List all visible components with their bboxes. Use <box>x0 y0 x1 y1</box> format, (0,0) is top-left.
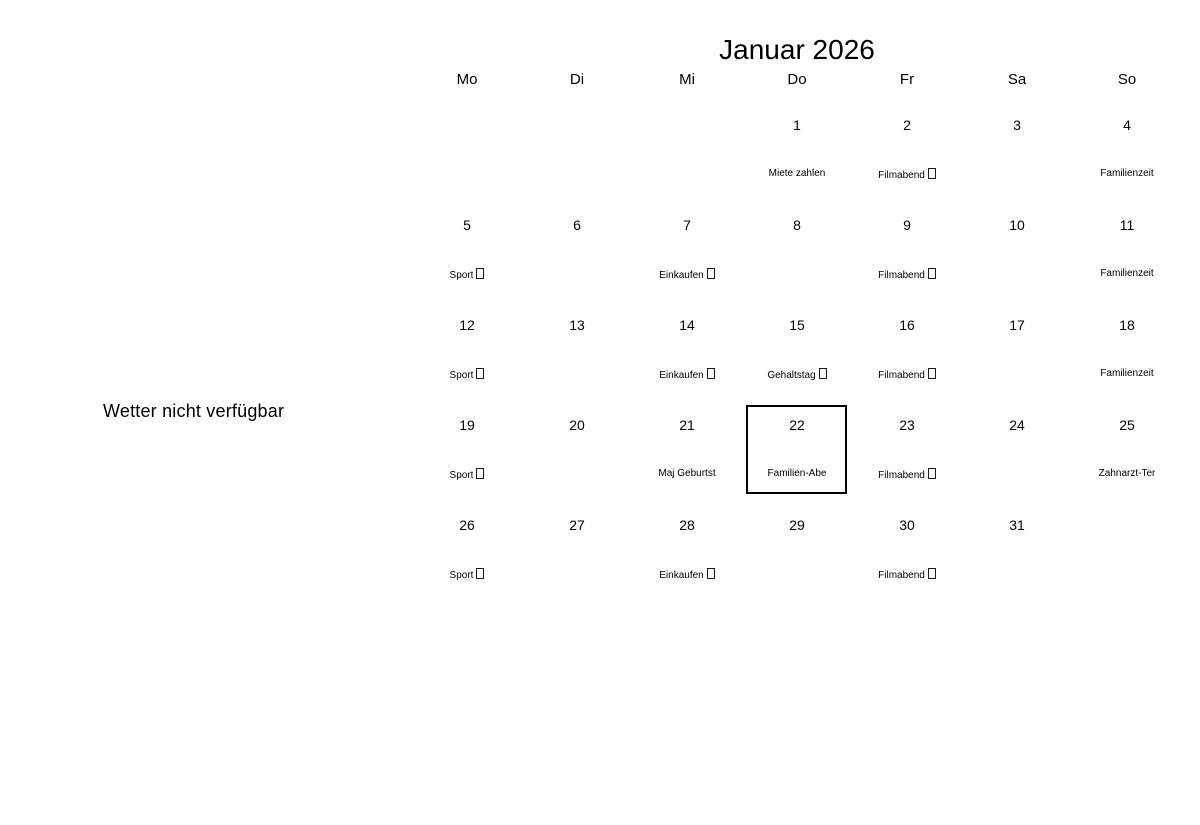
event-label: Familienzeit <box>1072 368 1182 379</box>
missing-glyph-icon <box>476 568 484 579</box>
day-number: 18 <box>1072 317 1182 333</box>
event-text: Familienzeit <box>1100 268 1153 279</box>
calendar-empty-cell <box>1072 505 1182 605</box>
calendar-grid: 1Miete zahlen2Filmabend34Familienzeit5Sp… <box>412 105 1182 605</box>
missing-glyph-icon <box>476 468 484 479</box>
event-label: Filmabend <box>852 168 962 181</box>
calendar-empty-cell <box>632 105 742 205</box>
day-number: 26 <box>412 517 522 533</box>
event-label: Filmabend <box>852 368 962 381</box>
event-text: Sport <box>450 270 474 281</box>
day-number: 2 <box>852 117 962 133</box>
weekday-label-fr: Fr <box>852 71 962 88</box>
event-label: Miete zahlen <box>742 168 852 179</box>
missing-glyph-icon <box>707 568 715 579</box>
event-label: Filmabend <box>852 568 962 581</box>
day-number: 17 <box>962 317 1072 333</box>
calendar-day-cell-6: 6 <box>522 205 632 305</box>
event-label: Filmabend <box>852 468 962 481</box>
missing-glyph-icon <box>707 268 715 279</box>
day-number: 29 <box>742 517 852 533</box>
calendar-day-cell-13: 13 <box>522 305 632 405</box>
day-number: 23 <box>852 417 962 433</box>
missing-glyph-icon <box>928 468 936 479</box>
calendar-day-cell-14: 14Einkaufen <box>632 305 742 405</box>
calendar-day-cell-8: 8 <box>742 205 852 305</box>
calendar-day-cell-18: 18Familienzeit <box>1072 305 1182 405</box>
calendar-day-cell-9: 9Filmabend <box>852 205 962 305</box>
day-number: 28 <box>632 517 742 533</box>
weekday-label-sa: Sa <box>962 71 1072 88</box>
day-number: 25 <box>1072 417 1182 433</box>
weekday-label-di: Di <box>522 71 632 88</box>
event-label: Sport <box>412 568 522 581</box>
event-text: Filmabend <box>878 470 925 481</box>
day-number: 8 <box>742 217 852 233</box>
calendar-empty-cell <box>412 105 522 205</box>
calendar-day-cell-17: 17 <box>962 305 1072 405</box>
day-number: 10 <box>962 217 1072 233</box>
event-text: Familien-Abe <box>768 468 827 479</box>
day-number: 9 <box>852 217 962 233</box>
event-text: Familienzeit <box>1100 168 1153 179</box>
calendar-day-cell-22: 22Familien-Abe <box>742 405 852 505</box>
weekday-label-mo: Mo <box>412 71 522 88</box>
calendar-day-cell-31: 31 <box>962 505 1072 605</box>
event-label: Filmabend <box>852 268 962 281</box>
weather-unavailable-text: Wetter nicht verfügbar <box>103 401 284 422</box>
calendar-day-cell-20: 20 <box>522 405 632 505</box>
missing-glyph-icon <box>476 368 484 379</box>
event-label: Sport <box>412 468 522 481</box>
event-text: Sport <box>450 370 474 381</box>
event-text: Einkaufen <box>659 570 703 581</box>
event-label: Sport <box>412 368 522 381</box>
missing-glyph-icon <box>476 268 484 279</box>
calendar-day-cell-30: 30Filmabend <box>852 505 962 605</box>
event-label: Sport <box>412 268 522 281</box>
event-text: Filmabend <box>878 170 925 181</box>
event-text: Familienzeit <box>1100 368 1153 379</box>
calendar-day-cell-23: 23Filmabend <box>852 405 962 505</box>
day-number: 27 <box>522 517 632 533</box>
event-text: Gehaltstag <box>767 370 815 381</box>
day-number: 12 <box>412 317 522 333</box>
day-number: 31 <box>962 517 1072 533</box>
day-number: 16 <box>852 317 962 333</box>
day-number: 30 <box>852 517 962 533</box>
event-label: Maj Geburtst <box>632 468 742 479</box>
calendar-day-cell-1: 1Miete zahlen <box>742 105 852 205</box>
weekday-label-mi: Mi <box>632 71 742 88</box>
calendar-day-cell-26: 26Sport <box>412 505 522 605</box>
calendar-day-cell-3: 3 <box>962 105 1072 205</box>
event-label: Familien-Abe <box>742 468 852 479</box>
event-text: Filmabend <box>878 570 925 581</box>
calendar-day-cell-4: 4Familienzeit <box>1072 105 1182 205</box>
day-number: 6 <box>522 217 632 233</box>
day-number: 1 <box>742 117 852 133</box>
missing-glyph-icon <box>928 168 936 179</box>
event-text: Sport <box>450 470 474 481</box>
day-number: 13 <box>522 317 632 333</box>
day-number: 19 <box>412 417 522 433</box>
event-text: Einkaufen <box>659 270 703 281</box>
weekday-label-do: Do <box>742 71 852 88</box>
calendar-day-cell-12: 12Sport <box>412 305 522 405</box>
calendar-day-cell-5: 5Sport <box>412 205 522 305</box>
day-number: 20 <box>522 417 632 433</box>
missing-glyph-icon <box>928 368 936 379</box>
event-text: Maj Geburtst <box>658 468 715 479</box>
day-number: 15 <box>742 317 852 333</box>
missing-glyph-icon <box>707 368 715 379</box>
missing-glyph-icon <box>928 568 936 579</box>
calendar-day-cell-19: 19Sport <box>412 405 522 505</box>
event-text: Zahnarzt-Ter <box>1099 468 1156 479</box>
calendar-day-cell-11: 11Familienzeit <box>1072 205 1182 305</box>
calendar-empty-cell <box>522 105 632 205</box>
day-number: 3 <box>962 117 1072 133</box>
missing-glyph-icon <box>928 268 936 279</box>
calendar-day-cell-29: 29 <box>742 505 852 605</box>
calendar-day-cell-15: 15Gehaltstag <box>742 305 852 405</box>
event-text: Filmabend <box>878 270 925 281</box>
calendar-day-cell-10: 10 <box>962 205 1072 305</box>
calendar-title: Januar 2026 <box>412 34 1182 66</box>
calendar-day-cell-27: 27 <box>522 505 632 605</box>
day-number: 4 <box>1072 117 1182 133</box>
day-number: 22 <box>742 417 852 433</box>
day-number: 14 <box>632 317 742 333</box>
calendar-day-cell-28: 28Einkaufen <box>632 505 742 605</box>
calendar-day-cell-16: 16Filmabend <box>852 305 962 405</box>
day-number: 5 <box>412 217 522 233</box>
day-number: 11 <box>1072 217 1182 233</box>
calendar-day-cell-7: 7Einkaufen <box>632 205 742 305</box>
weekday-header-row: MoDiMiDoFrSaSo <box>412 71 1182 88</box>
day-number: 7 <box>632 217 742 233</box>
event-text: Miete zahlen <box>769 168 826 179</box>
calendar-day-cell-25: 25Zahnarzt-Ter <box>1072 405 1182 505</box>
weekday-label-so: So <box>1072 71 1182 88</box>
event-label: Familienzeit <box>1072 268 1182 279</box>
event-label: Familienzeit <box>1072 168 1182 179</box>
calendar-day-cell-2: 2Filmabend <box>852 105 962 205</box>
event-text: Filmabend <box>878 370 925 381</box>
event-label: Gehaltstag <box>742 368 852 381</box>
event-label: Einkaufen <box>632 268 742 281</box>
day-number: 24 <box>962 417 1072 433</box>
missing-glyph-icon <box>819 368 827 379</box>
calendar-day-cell-24: 24 <box>962 405 1072 505</box>
event-text: Einkaufen <box>659 370 703 381</box>
calendar-day-cell-21: 21Maj Geburtst <box>632 405 742 505</box>
event-label: Einkaufen <box>632 568 742 581</box>
event-label: Zahnarzt-Ter <box>1072 468 1182 479</box>
event-label: Einkaufen <box>632 368 742 381</box>
day-number: 21 <box>632 417 742 433</box>
event-text: Sport <box>450 570 474 581</box>
